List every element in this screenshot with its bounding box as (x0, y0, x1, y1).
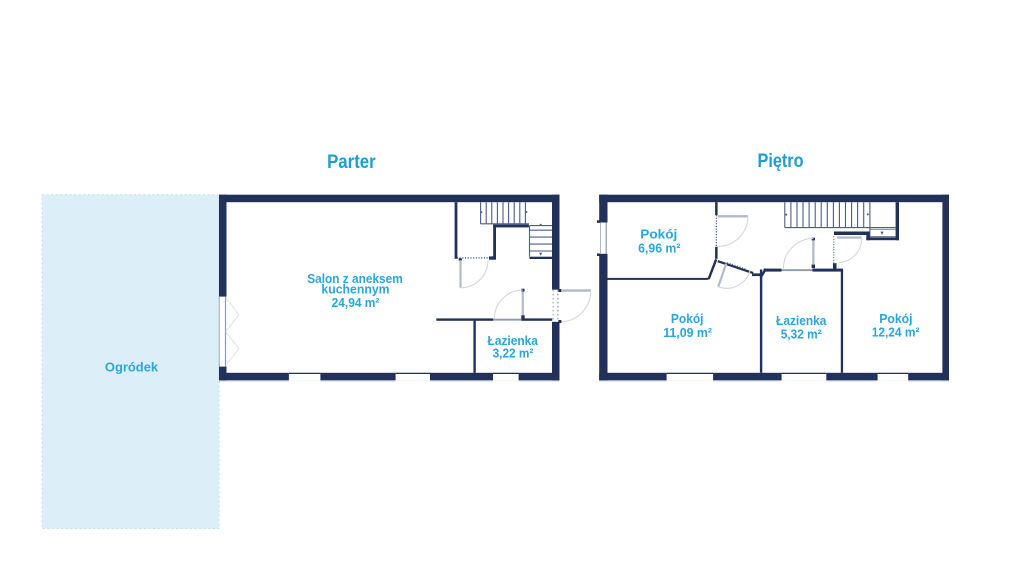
svg-text:Pokój: Pokój (879, 312, 912, 326)
svg-text:Łazienka: Łazienka (776, 314, 827, 328)
svg-text:Ogródek: Ogródek (105, 360, 158, 374)
svg-text:Pokój: Pokój (671, 312, 704, 326)
svg-text:Parter: Parter (327, 152, 376, 173)
svg-text:kuchennym: kuchennym (321, 282, 389, 296)
svg-text:Pokój: Pokój (640, 228, 677, 242)
svg-text:11,09 m²: 11,09 m² (663, 326, 712, 340)
svg-text:6,96 m²: 6,96 m² (638, 242, 680, 256)
svg-text:12,24 m²: 12,24 m² (872, 325, 920, 339)
svg-text:3,22 m²: 3,22 m² (493, 346, 534, 360)
svg-text:Piętro: Piętro (758, 151, 804, 172)
svg-text:5,32 m²: 5,32 m² (781, 327, 822, 341)
svg-text:24,94 m²: 24,94 m² (332, 296, 380, 310)
